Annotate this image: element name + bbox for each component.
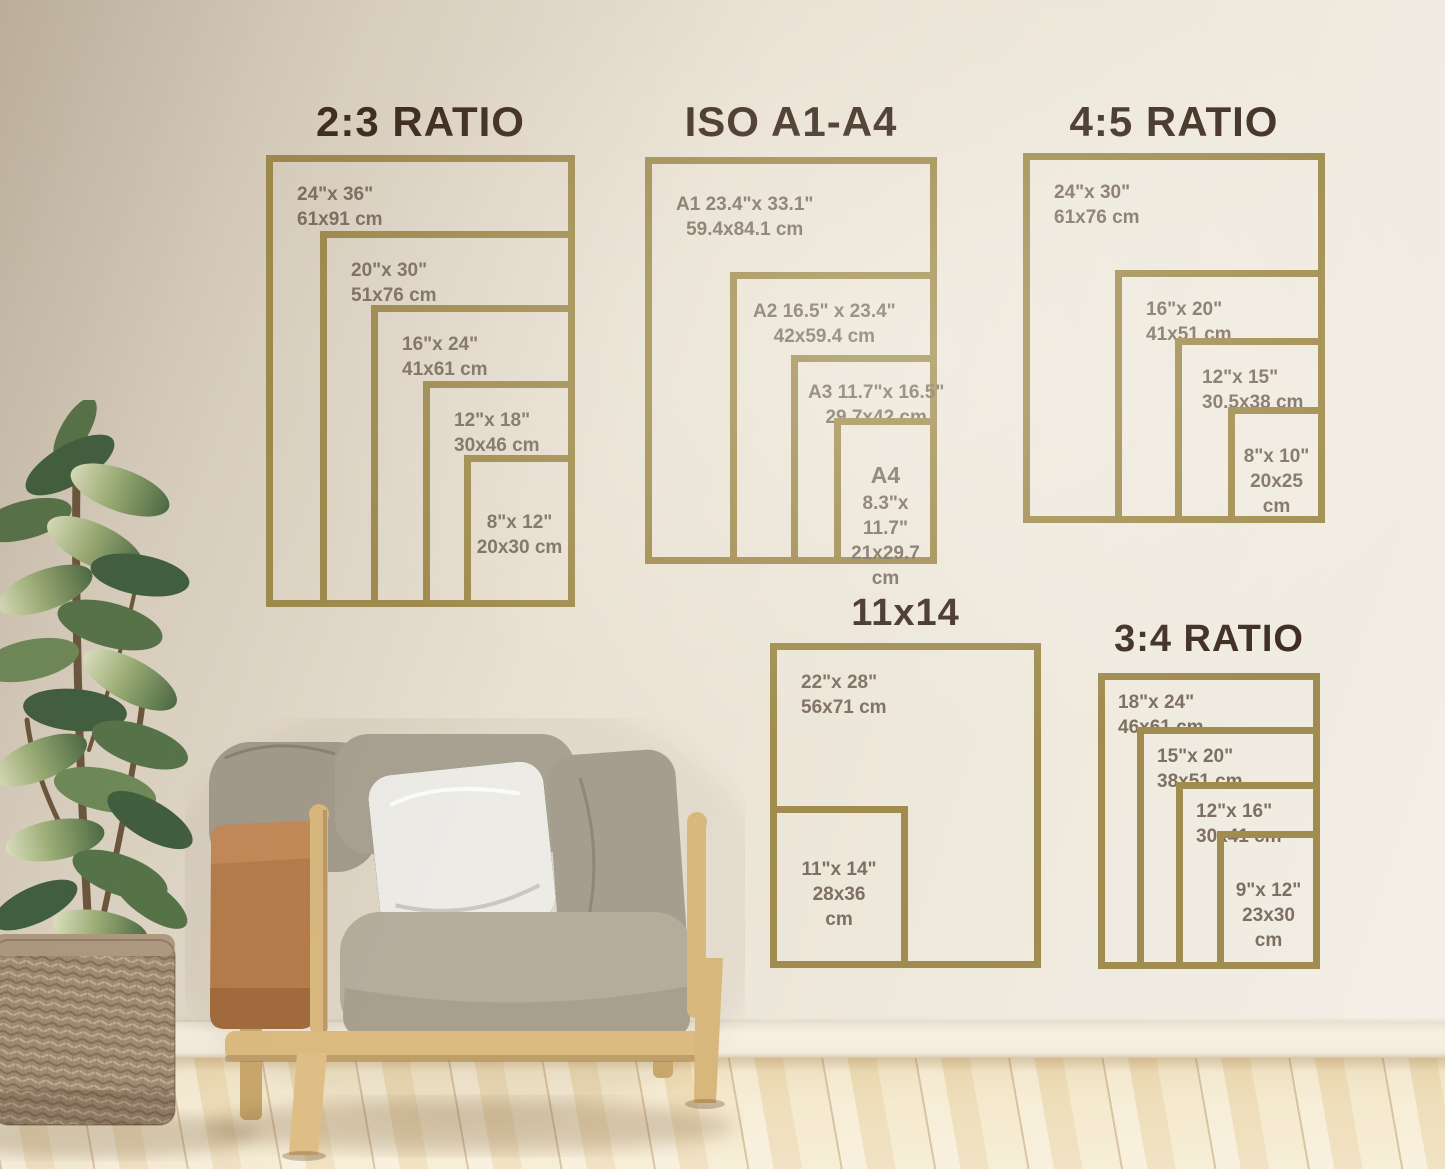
armchair-illustration — [185, 718, 745, 1169]
size-frame-11x14: 11"x 14" 28x36 cm — [770, 806, 908, 968]
size-cm-unit: cm — [1224, 928, 1313, 953]
size-inches: 16"x 20" — [1146, 297, 1232, 322]
size-label: A4 8.3"x 11.7" 21x29.7 cm — [841, 461, 930, 591]
size-label: A1 23.4"x 33.1" 59.4x84.1 cm — [676, 192, 813, 242]
chair-floor-shadow — [205, 1100, 735, 1152]
size-cm-unit: cm — [841, 566, 930, 591]
size-inches: 16"x 24" — [402, 332, 488, 357]
size-cm: 42x59.4 cm — [753, 324, 896, 349]
size-inches: 22"x 28" — [801, 670, 887, 695]
size-label: 12"x 18" 30x46 cm — [454, 408, 540, 458]
size-inches: 20"x 30" — [351, 258, 437, 283]
size-cm: 56x71 cm — [801, 695, 887, 720]
size-inches: 12"x 15" — [1202, 365, 1303, 390]
size-cm: 28x36 — [777, 882, 901, 907]
size-inches: 24"x 36" — [297, 182, 383, 207]
room-scene: 2:3 RATIO 24"x 36" 61x91 cm 20"x 30" 51x… — [0, 0, 1445, 1169]
size-label: 24"x 30" 61x76 cm — [1054, 180, 1140, 230]
section-title: 3:4 RATIO — [1098, 620, 1320, 660]
size-frame-8x10: 8"x 10" 20x25 cm — [1228, 407, 1325, 523]
section-title: ISO A1-A4 — [645, 100, 937, 144]
size-frame-a4: A4 8.3"x 11.7" 21x29.7 cm — [834, 418, 937, 564]
size-inches: A1 23.4"x 33.1" — [676, 192, 813, 217]
woven-basket — [0, 934, 175, 1125]
size-cm: 59.4x84.1 cm — [676, 217, 813, 242]
size-label: 24"x 36" 61x91 cm — [297, 182, 383, 232]
size-cm: 20x30 cm — [471, 535, 568, 560]
size-label: A2 16.5" x 23.4" 42x59.4 cm — [753, 299, 896, 349]
size-inches: A2 16.5" x 23.4" — [753, 299, 896, 324]
size-label: 16"x 24" 41x61 cm — [402, 332, 488, 382]
size-inches: 12"x 18" — [454, 408, 540, 433]
size-cm: 61x76 cm — [1054, 205, 1140, 230]
section-title: 2:3 RATIO — [266, 100, 575, 144]
size-label: 9"x 12" 23x30 cm — [1224, 878, 1313, 953]
size-inches: 9"x 12" — [1224, 878, 1313, 903]
size-label: 8"x 10" 20x25 cm — [1235, 444, 1318, 519]
section-title: 4:5 RATIO — [1023, 100, 1325, 144]
size-inches: 18"x 24" — [1118, 690, 1204, 715]
size-inches: A3 11.7"x 16.5" — [808, 380, 944, 405]
size-label: 20"x 30" 51x76 cm — [351, 258, 437, 308]
size-code: A4 — [841, 461, 930, 489]
chair-seat — [340, 912, 694, 1037]
size-inches: 12"x 16" — [1196, 799, 1282, 824]
section-title: 11x14 — [770, 594, 1041, 634]
size-label: 11"x 14" 28x36 cm — [777, 857, 901, 932]
size-cm: 41x61 cm — [402, 357, 488, 382]
size-frame-8x12: 8"x 12" 20x30 cm — [464, 455, 575, 607]
size-label: 22"x 28" 56x71 cm — [801, 670, 887, 720]
size-inches: 8.3"x 11.7" — [841, 491, 930, 541]
size-cm-unit: cm — [1235, 494, 1318, 519]
size-cm-unit: cm — [777, 907, 901, 932]
size-inches: 15"x 20" — [1157, 744, 1243, 769]
size-inches: 8"x 10" — [1235, 444, 1318, 469]
size-cm: 23x30 — [1224, 903, 1313, 928]
size-inches: 11"x 14" — [777, 857, 901, 882]
size-cm: 20x25 — [1235, 469, 1318, 494]
size-inches: 8"x 12" — [471, 510, 568, 535]
plant-leaves — [0, 400, 201, 989]
size-frame-9x12: 9"x 12" 23x30 cm — [1217, 831, 1320, 969]
size-cm: 61x91 cm — [297, 207, 383, 232]
size-inches: 24"x 30" — [1054, 180, 1140, 205]
size-cm: 21x29.7 — [841, 541, 930, 566]
size-label: 8"x 12" 20x30 cm — [471, 510, 568, 560]
leather-side-panel — [210, 821, 315, 1029]
white-pillow — [366, 759, 558, 937]
chair-front-right-leg — [694, 958, 723, 1103]
